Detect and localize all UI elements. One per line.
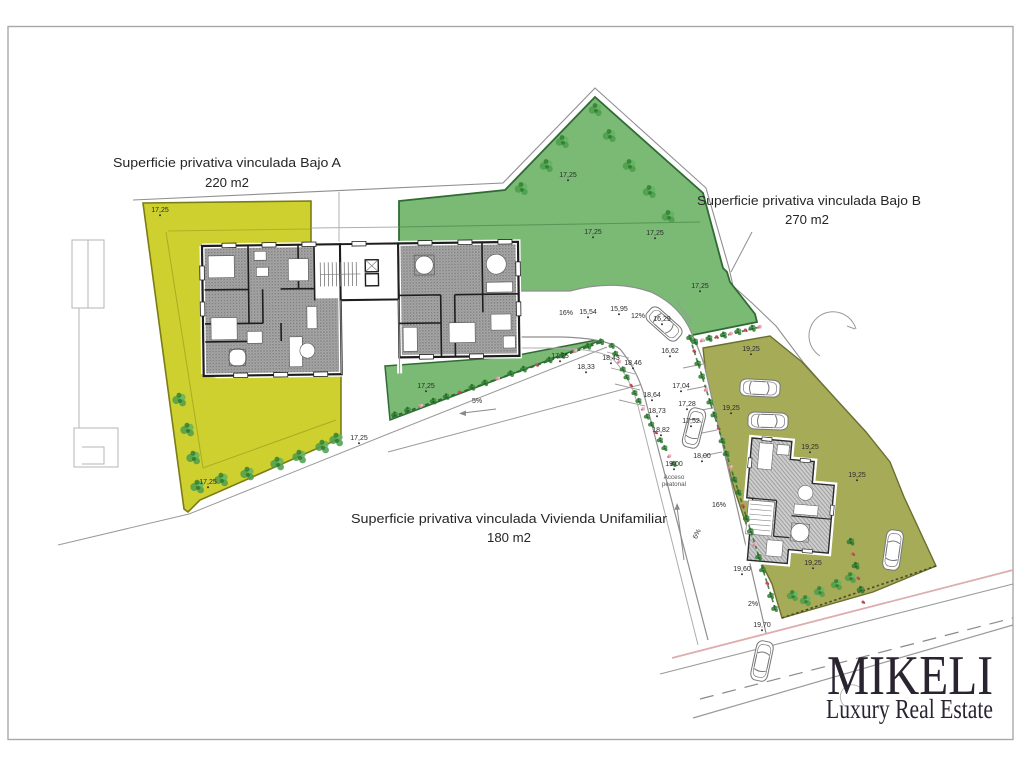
- svg-text:18,64: 18,64: [643, 392, 661, 399]
- svg-text:17,25: 17,25: [350, 435, 368, 442]
- svg-text:Superficie privativa vinculada: Superficie privativa vinculada Bajo B: [697, 193, 921, 208]
- svg-text:19,25: 19,25: [804, 560, 822, 567]
- svg-text:18,00: 18,00: [693, 453, 711, 460]
- svg-text:peatonal: peatonal: [662, 481, 686, 488]
- svg-text:16,62: 16,62: [661, 348, 679, 355]
- svg-text:17,25: 17,25: [199, 479, 217, 486]
- svg-text:17,25: 17,25: [691, 283, 709, 290]
- svg-text:2%: 2%: [748, 601, 758, 608]
- svg-text:19,70: 19,70: [753, 622, 771, 629]
- svg-text:17,28: 17,28: [678, 401, 696, 408]
- svg-text:19,60: 19,60: [733, 566, 751, 573]
- svg-text:16,29: 16,29: [653, 316, 671, 323]
- svg-text:17,04: 17,04: [672, 383, 690, 390]
- svg-text:270 m2: 270 m2: [785, 212, 829, 227]
- svg-text:17,52: 17,52: [682, 418, 700, 425]
- svg-text:180 m2: 180 m2: [487, 530, 531, 545]
- svg-text:19,25: 19,25: [742, 346, 760, 353]
- svg-text:18,46: 18,46: [624, 360, 642, 367]
- svg-text:Superficie privativa vinculada: Superficie privativa vinculada Bajo A: [113, 155, 341, 170]
- svg-text:19,25: 19,25: [801, 444, 819, 451]
- svg-text:18,43: 18,43: [602, 355, 620, 362]
- svg-text:15,95: 15,95: [610, 306, 628, 313]
- svg-text:17,25: 17,25: [417, 383, 435, 390]
- svg-text:16%: 16%: [559, 310, 573, 317]
- svg-text:12%: 12%: [631, 313, 645, 320]
- svg-text:17,25: 17,25: [584, 229, 602, 236]
- svg-text:19,25: 19,25: [848, 472, 866, 479]
- svg-text:5%: 5%: [472, 398, 482, 405]
- svg-text:220 m2: 220 m2: [205, 175, 249, 190]
- svg-text:17,25: 17,25: [646, 230, 664, 237]
- svg-text:16%: 16%: [712, 502, 726, 509]
- svg-text:15,54: 15,54: [579, 309, 597, 316]
- svg-text:17,25: 17,25: [151, 207, 169, 214]
- svg-text:18,73: 18,73: [648, 408, 666, 415]
- svg-text:Superficie privativa vinculada: Superficie privativa vinculada Vivienda …: [351, 511, 668, 526]
- svg-text:Acceso: Acceso: [664, 474, 685, 481]
- svg-text:19,00: 19,00: [665, 461, 683, 468]
- svg-text:17,25: 17,25: [559, 172, 577, 179]
- svg-text:17,25: 17,25: [551, 353, 569, 360]
- svg-text:Luxury Real Estate: Luxury Real Estate: [826, 694, 993, 724]
- svg-text:18,82: 18,82: [652, 427, 670, 434]
- svg-text:18,33: 18,33: [577, 364, 595, 371]
- svg-text:19,25: 19,25: [722, 405, 740, 412]
